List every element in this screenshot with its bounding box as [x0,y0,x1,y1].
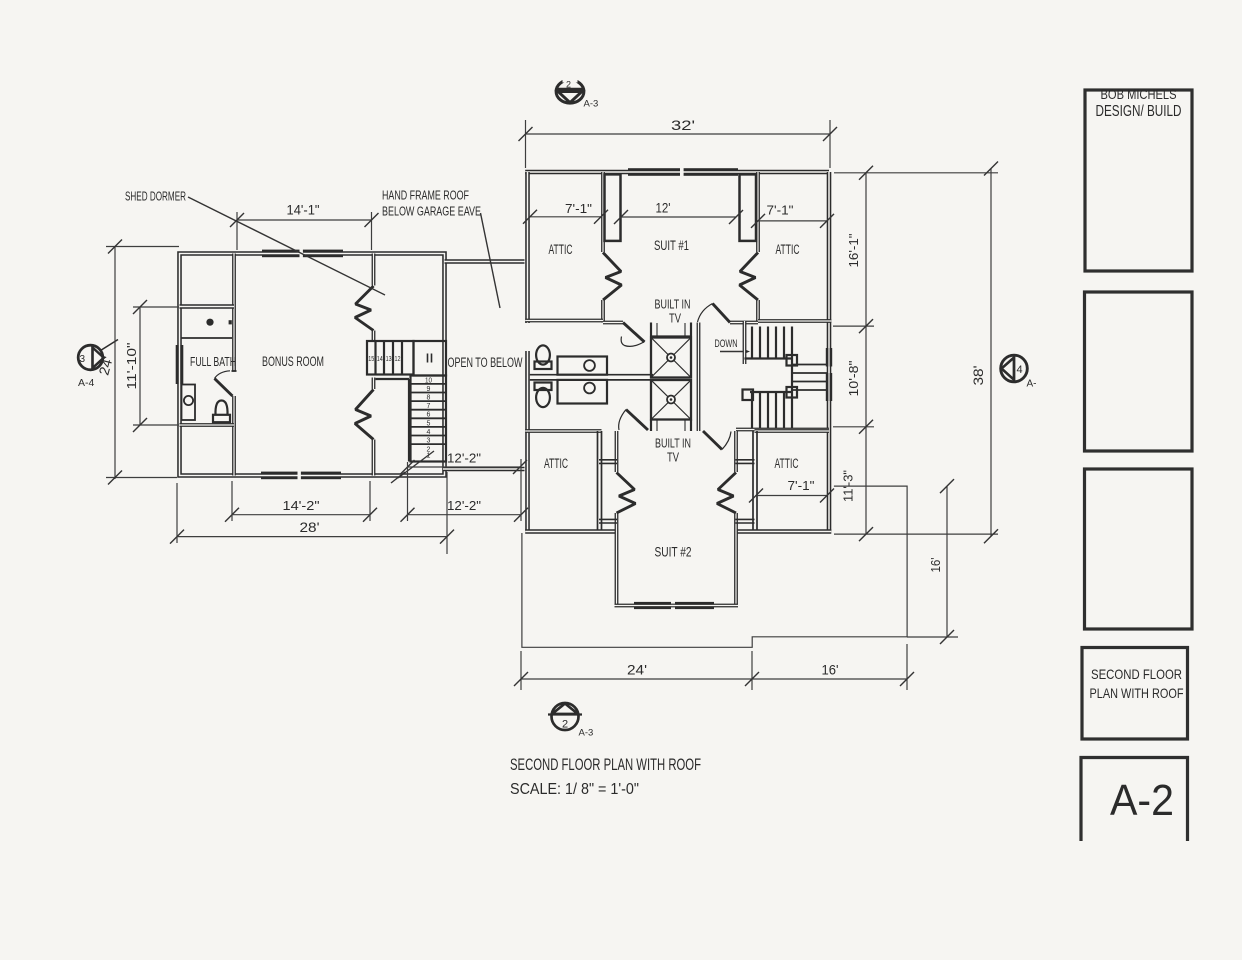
svg-text:15: 15 [368,356,374,363]
svg-text:HAND FRAME ROOF: HAND FRAME ROOF [382,188,469,203]
svg-text:3: 3 [427,438,431,445]
svg-text:11'-10": 11'-10" [125,343,139,390]
svg-text:3: 3 [80,354,86,365]
svg-text:DESIGN/ BUILD: DESIGN/ BUILD [1096,103,1182,120]
svg-text:7'-1": 7'-1" [767,203,794,218]
svg-text:BOB MICHELS: BOB MICHELS [1101,86,1177,102]
svg-text:SUIT #2: SUIT #2 [655,545,692,560]
svg-text:BUILT IN: BUILT IN [655,298,691,312]
svg-text:OPEN TO BELOW: OPEN TO BELOW [448,355,523,370]
svg-text:16'-1": 16'-1" [847,234,861,268]
svg-text:TV: TV [667,451,679,465]
svg-text:PLAN WITH ROOF: PLAN WITH ROOF [1090,685,1184,701]
svg-text:SCALE: 1/ 8" = 1'-0": SCALE: 1/ 8" = 1'-0" [510,781,639,798]
svg-text:ATTIC: ATTIC [776,242,800,257]
svg-text:10'-8": 10'-8" [846,360,861,396]
svg-text:12'-2": 12'-2" [447,451,481,466]
svg-text:14: 14 [377,356,383,363]
svg-text:A-2: A-2 [1110,776,1174,825]
svg-text:14'-2": 14'-2" [283,498,320,513]
svg-text:SECOND FLOOR PLAN WITH ROOF: SECOND FLOOR PLAN WITH ROOF [510,755,701,774]
svg-text:A-: A- [1027,379,1037,390]
svg-text:A-3: A-3 [584,99,599,110]
svg-text:24': 24' [627,663,647,678]
svg-text:14'-1": 14'-1" [287,203,320,218]
svg-text:32': 32' [671,117,695,133]
svg-text:A-4: A-4 [78,377,95,389]
svg-text:12'-2": 12'-2" [447,498,481,513]
svg-text:7: 7 [427,403,431,410]
svg-text:TV: TV [669,312,681,326]
svg-text:A-3: A-3 [579,728,594,739]
svg-text:7'-1": 7'-1" [788,478,815,493]
svg-text:2: 2 [562,719,568,731]
svg-text:ATTIC: ATTIC [549,242,573,257]
svg-text:SHED DORMER: SHED DORMER [125,189,186,204]
svg-text:BONUS ROOM: BONUS ROOM [262,353,324,369]
svg-text:11'-3": 11'-3" [842,470,856,502]
svg-text:6: 6 [427,412,431,419]
svg-text:ATTIC: ATTIC [775,456,799,471]
svg-text:SECOND FLOOR: SECOND FLOOR [1091,666,1182,682]
svg-text:ATTIC: ATTIC [544,456,568,471]
svg-text:12': 12' [656,201,671,216]
svg-text:BUILT IN: BUILT IN [655,437,691,451]
svg-text:7'-1": 7'-1" [565,201,592,216]
svg-text:SUIT #1: SUIT #1 [654,238,689,253]
svg-text:10: 10 [425,377,432,384]
svg-text:2: 2 [566,80,571,90]
svg-text:28': 28' [300,520,320,535]
svg-text:BELOW GARAGE EAVE: BELOW GARAGE EAVE [382,204,481,219]
svg-text:4: 4 [427,429,431,436]
svg-text:13: 13 [386,356,392,363]
svg-text:8: 8 [427,395,431,402]
svg-text:DOWN: DOWN [715,338,738,350]
svg-text:38': 38' [971,366,986,386]
svg-text:12: 12 [395,356,401,363]
svg-text:FULL BATH: FULL BATH [190,355,236,369]
svg-text:16': 16' [822,663,839,678]
svg-text:5: 5 [427,420,431,427]
svg-text:9: 9 [427,386,431,393]
svg-text:4: 4 [1017,364,1023,376]
svg-text:16': 16' [929,558,943,573]
